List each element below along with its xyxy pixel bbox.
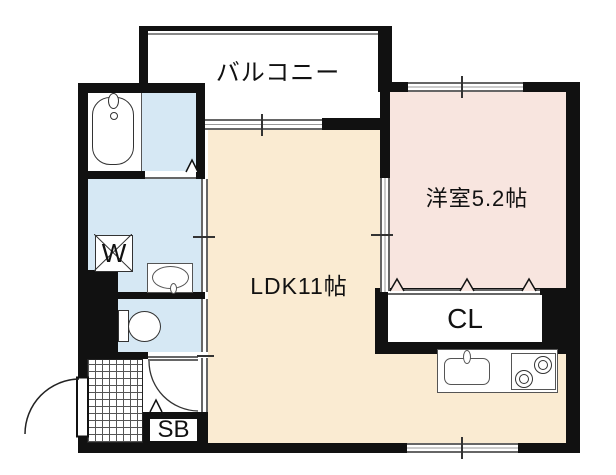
western-room-left-wall-upper [380,83,390,178]
western-room-label: 洋室5.2帖 [426,181,529,213]
balcony-window [205,119,322,130]
ldk-top-wall [322,118,380,130]
sliding-door-tick [371,234,393,236]
stove-burner-icon [534,356,552,374]
front-door-swing-arc [25,379,79,434]
stove-burner-inner [519,374,529,384]
stove-burner-icon [515,370,533,388]
front-door-opening [78,377,88,437]
washroom-toilet-wall [115,292,205,299]
closet-label: CL [447,303,483,335]
balcony-label: バルコニー [216,53,341,88]
bathtub-drain-icon [110,112,118,120]
toilet-door [201,299,208,352]
balcony-left-wall [139,26,148,85]
bathtub-faucet-icon [108,93,119,109]
balcony-railing-inner-line [148,33,378,35]
washing-machine-icon: W [95,235,133,272]
closet-box: CL [388,295,542,342]
hall-partition-track [201,358,208,412]
balcony-railing [139,26,392,31]
bottom-window-tick [461,437,463,459]
bottom-exterior-wall-left [78,443,407,453]
vanity-faucet-icon [170,283,177,294]
balcony-window-tick [261,114,263,136]
bathroom-door [145,171,196,179]
ldk-label: LDK11帖 [250,267,348,301]
toilet-bowl-icon [128,311,161,342]
entrance-tile [87,359,143,443]
western-window-tick [461,76,463,98]
hall-door-tick [197,355,214,357]
western-room-window [408,82,523,92]
kitchen-faucet-icon [463,350,471,364]
bathroom-bottom-wall [78,171,145,179]
pipe-space-block [78,270,118,358]
bathroom-right-wall [196,93,205,179]
hall-door-line [148,356,198,361]
shoebox-label: SB [157,416,189,444]
stove-burner-inner [538,360,548,370]
washroom-door-tick [193,236,215,238]
entrance-hall-floor [148,358,201,413]
washing-machine-label: W [102,238,127,269]
bathroom-annex-floor [141,93,196,171]
toilet-bottom-wall [78,352,148,359]
bathroom-top-wall [78,83,205,93]
shoebox-box: SB [148,417,199,443]
right-exterior-wall [566,82,580,453]
floor-plan: CL SB W バルコニー [0,0,616,475]
bottom-exterior-wall-right [518,443,580,453]
